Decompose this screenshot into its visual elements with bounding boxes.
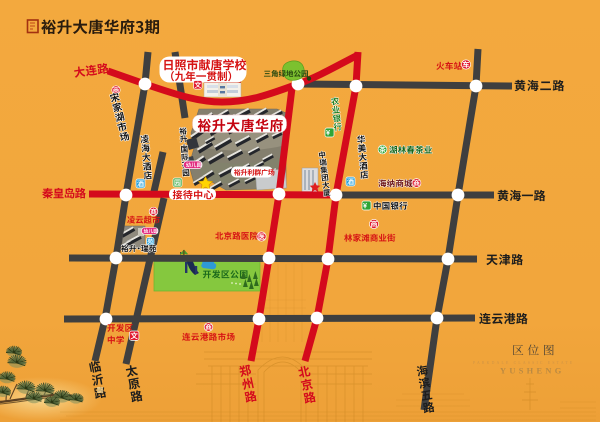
svg-text:YUSHENG: YUSHENG [500, 367, 565, 376]
svg-text:PARKDALE CLASSIC ESTATE: PARKDALE CLASSIC ESTATE [473, 361, 574, 365]
